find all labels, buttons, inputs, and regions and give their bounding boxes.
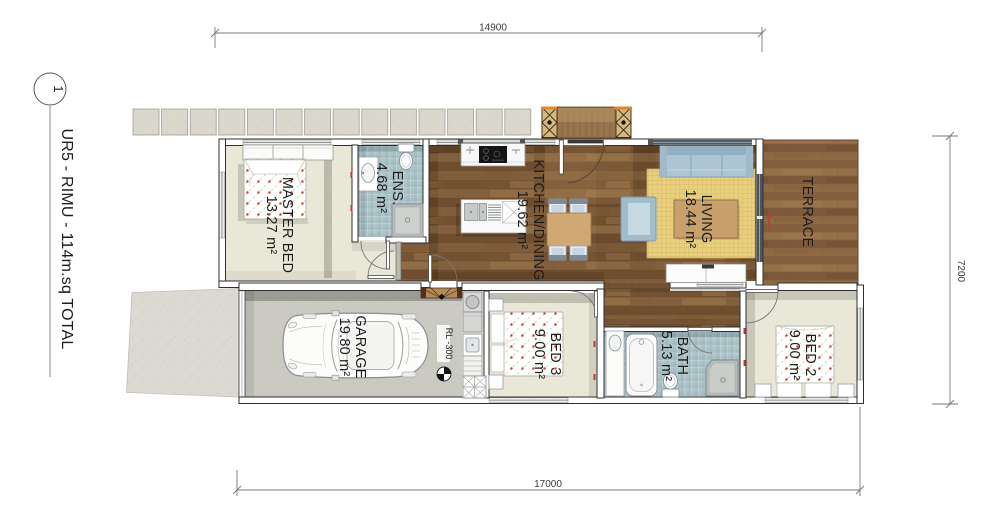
svg-text:BED 2: BED 2 [802, 334, 818, 377]
svg-text:ENS.: ENS. [389, 171, 405, 206]
svg-text:KITCHEN/DINING: KITCHEN/DINING [530, 159, 546, 280]
svg-text:BED 3: BED 3 [547, 333, 563, 376]
svg-text:19.62 m²: 19.62 m² [514, 191, 530, 250]
svg-text:GARAGE: GARAGE [352, 315, 368, 378]
svg-text:MASTER BED: MASTER BED [279, 177, 295, 273]
svg-text:RL -300: RL -300 [444, 328, 454, 360]
svg-text:13.27 m²: 13.27 m² [263, 196, 279, 255]
svg-text:1: 1 [51, 85, 66, 92]
svg-text:14900: 14900 [479, 23, 507, 34]
svg-text:7200: 7200 [955, 260, 966, 283]
svg-text:TERRACE: TERRACE [799, 177, 815, 248]
svg-text:9.00 m²: 9.00 m² [531, 329, 547, 380]
svg-text:5.13 m²: 5.13 m² [658, 331, 674, 382]
svg-text:LIVING: LIVING [698, 195, 714, 244]
svg-text:17000: 17000 [534, 479, 562, 490]
svg-text:4.68 m²: 4.68 m² [373, 163, 389, 214]
svg-text:9.00 m²: 9.00 m² [786, 330, 802, 381]
svg-text:UR5 - RIMU - 114m.sq TOTAL: UR5 - RIMU - 114m.sq TOTAL [58, 129, 75, 350]
svg-text:BATH: BATH [674, 337, 690, 375]
svg-text:19.80 m²: 19.80 m² [336, 318, 352, 377]
svg-text:18.44 m²: 18.44 m² [682, 190, 698, 249]
